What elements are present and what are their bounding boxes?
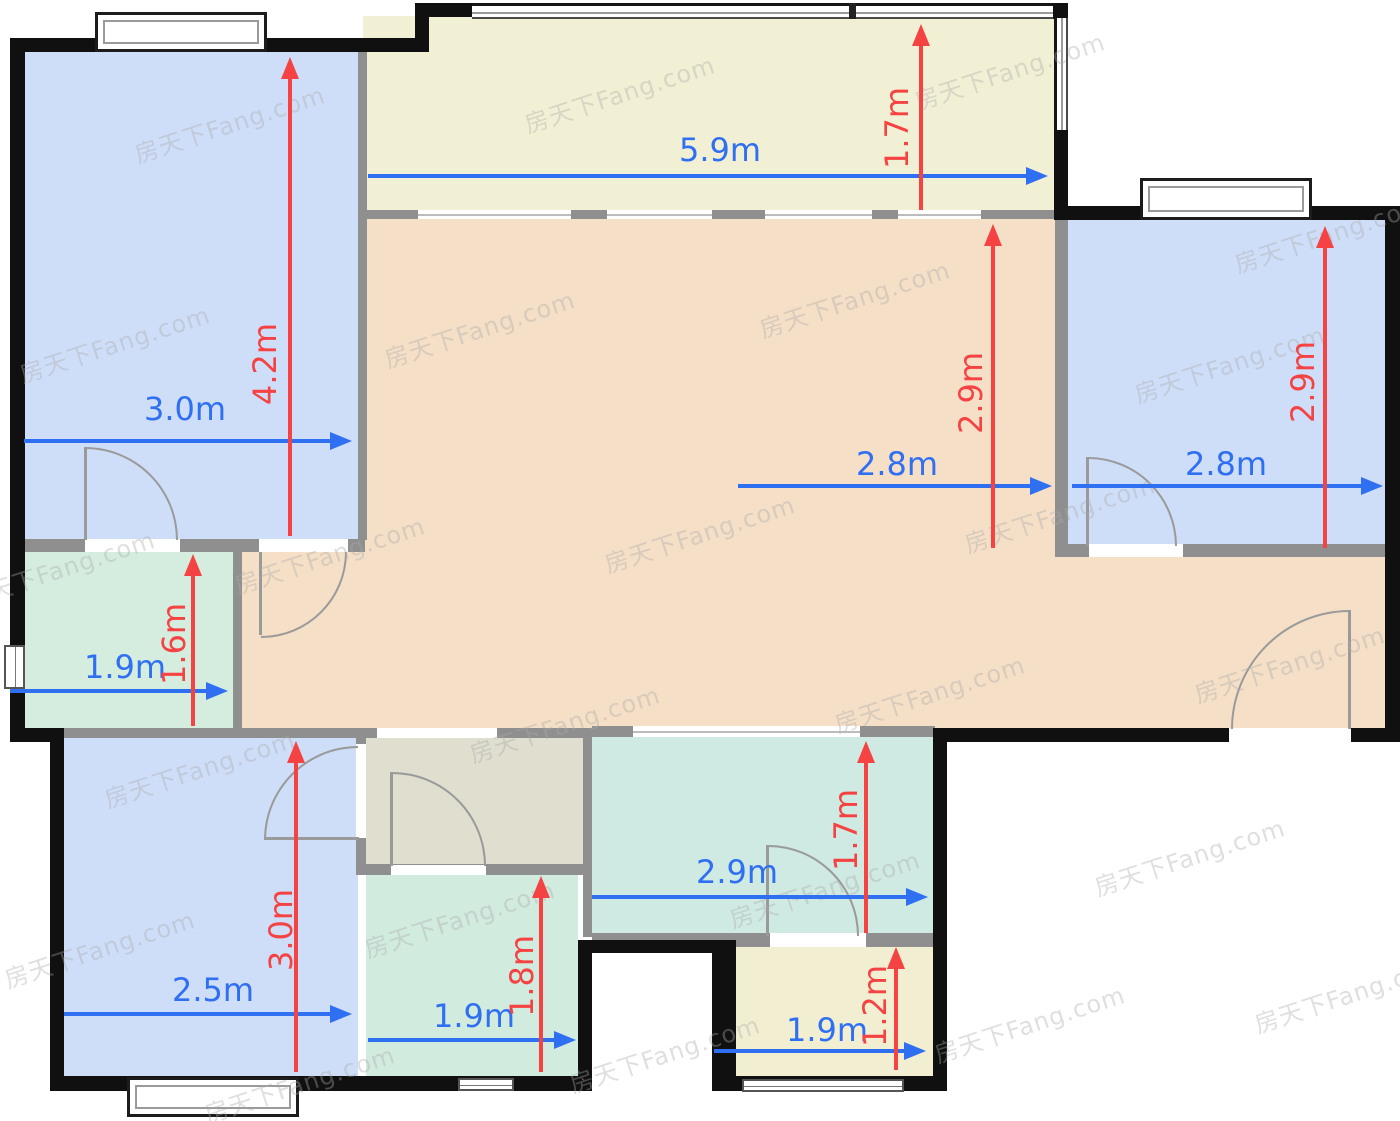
dim-label-horizontal: 2.8m xyxy=(856,448,938,480)
wall-opening xyxy=(607,210,712,219)
wall-opening xyxy=(633,726,860,737)
arrow-up-icon xyxy=(984,224,1002,246)
floor-plan: 房天下Fang.com房天下Fang.com房天下Fang.com房天下Fang… xyxy=(0,0,1400,1121)
wall-opening xyxy=(765,210,872,219)
wall-opening xyxy=(898,210,981,219)
wall-opening xyxy=(391,865,486,875)
dim-label-horizontal: 2.8m xyxy=(1185,448,1267,480)
dim-label-vertical: 3.0m xyxy=(265,889,297,971)
arrow-right-icon xyxy=(906,888,928,906)
dim-line-vertical xyxy=(288,75,292,536)
dim-line-vertical xyxy=(1323,244,1327,548)
dim-line-horizontal xyxy=(368,1038,558,1042)
dim-line-vertical xyxy=(919,42,923,210)
dim-label-vertical: 1.7m xyxy=(830,789,862,871)
outer-wall xyxy=(578,940,736,953)
window-strip-icon xyxy=(742,1079,904,1092)
arrow-right-icon xyxy=(904,1042,926,1060)
dim-label-vertical: 1.7m xyxy=(881,87,913,169)
wall-opening xyxy=(377,728,497,738)
arrow-right-icon xyxy=(330,1005,352,1023)
watermark: 房天下Fang.com xyxy=(1092,816,1288,900)
dim-line-vertical xyxy=(991,242,995,548)
window-mull-icon xyxy=(849,3,856,19)
dim-label-vertical: 1.8m xyxy=(506,935,538,1017)
arrow-up-icon xyxy=(1316,226,1334,248)
inner-wall xyxy=(583,737,592,937)
arrow-right-icon xyxy=(1030,477,1052,495)
wall-opening xyxy=(418,210,571,219)
arrow-up-icon xyxy=(857,741,875,763)
arrow-right-icon xyxy=(1361,477,1383,495)
outer-wall xyxy=(10,728,64,742)
arrow-up-icon xyxy=(184,554,202,576)
arrow-right-icon xyxy=(1026,167,1048,185)
outer-wall xyxy=(10,38,25,742)
wall-opening xyxy=(1229,728,1351,742)
arrow-up-icon xyxy=(281,57,299,79)
dim-label-horizontal: 5.9m xyxy=(679,134,761,166)
dim-line-horizontal xyxy=(714,1049,908,1053)
inner-wall xyxy=(358,52,367,540)
dim-label-vertical: 4.2m xyxy=(249,323,281,405)
window-glassh-icon xyxy=(472,3,1053,19)
window-framed-icon xyxy=(1140,178,1312,220)
watermark: 房天下Fang.com xyxy=(932,983,1128,1067)
dim-label-horizontal: 1.9m xyxy=(84,651,166,683)
outer-wall xyxy=(712,940,736,1091)
arrow-right-icon xyxy=(206,682,228,700)
dim-label-vertical: 2.9m xyxy=(955,352,987,434)
dim-label-vertical: 2.9m xyxy=(1287,341,1319,423)
dim-line-horizontal xyxy=(10,689,210,693)
outer-wall xyxy=(50,742,64,1091)
dim-label-horizontal: 2.5m xyxy=(172,974,254,1006)
window-framed-icon xyxy=(95,12,267,52)
window-strip-icon xyxy=(458,1078,514,1091)
room-balcony xyxy=(363,16,1055,212)
dim-line-horizontal xyxy=(592,895,910,899)
dim-label-horizontal: 2.9m xyxy=(696,856,778,888)
room-living-dining xyxy=(365,219,1055,731)
dim-line-horizontal xyxy=(368,174,1030,178)
dim-label-vertical: 1.2m xyxy=(859,965,891,1047)
dim-line-horizontal xyxy=(738,484,1034,488)
arrow-up-icon xyxy=(287,741,305,763)
outer-wall xyxy=(933,728,947,1090)
arrow-right-icon xyxy=(554,1031,576,1049)
outer-wall xyxy=(1051,3,1068,19)
dim-line-vertical xyxy=(894,965,898,1070)
window-stripv-icon xyxy=(4,645,25,689)
dim-label-horizontal: 3.0m xyxy=(144,393,226,425)
outer-wall xyxy=(415,3,477,17)
watermark: 房天下Fang.com xyxy=(1252,953,1400,1037)
arrow-up-icon xyxy=(912,24,930,46)
outer-wall xyxy=(1385,206,1400,742)
arrow-right-icon xyxy=(330,432,352,450)
window-glassv-icon xyxy=(1054,18,1068,130)
dim-line-horizontal xyxy=(1072,484,1365,488)
inner-wall xyxy=(50,728,367,738)
arrow-up-icon xyxy=(532,876,550,898)
dim-label-vertical: 1.6m xyxy=(158,603,190,685)
